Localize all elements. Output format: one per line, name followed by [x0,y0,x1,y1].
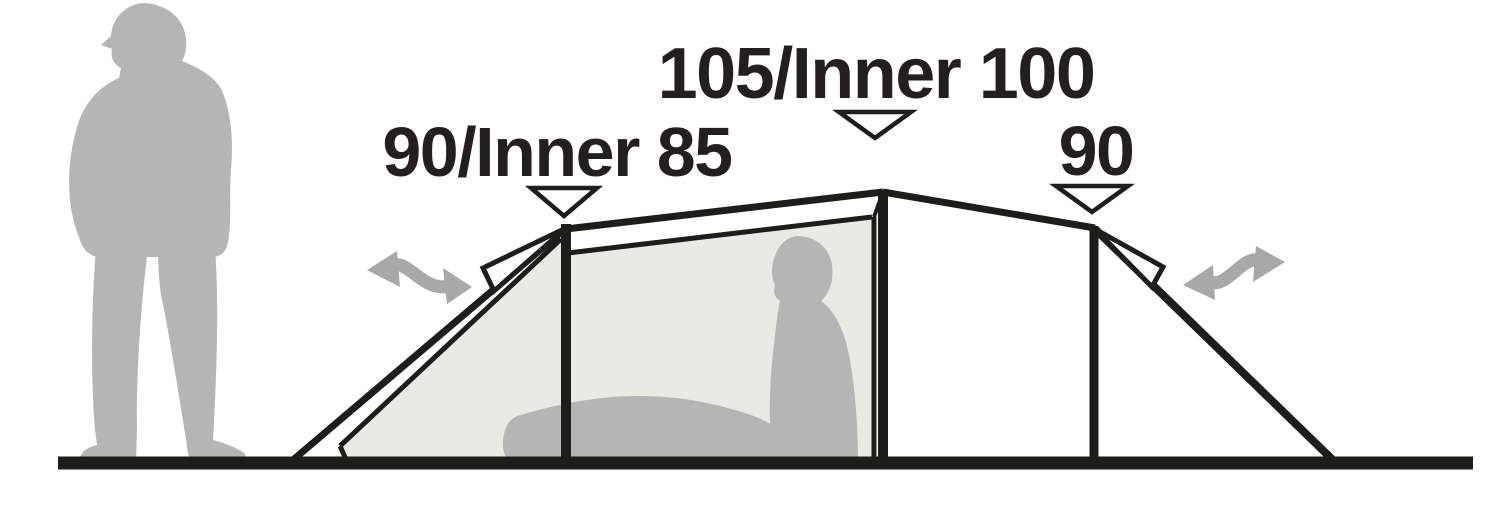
standing-person-silhouette [69,3,246,462]
right-arrow-head-left [1183,265,1215,300]
standing-person-body [69,3,232,257]
flysheet-ridge-right [883,192,1095,228]
left-arrow-head-left [367,251,400,287]
standing-person-left-leg [80,248,148,462]
left-arrow-head-right [443,268,472,304]
standing-person-right-leg [158,248,246,461]
right-arrow-head-right [1253,246,1285,282]
front-height-label: 90/Inner 85 [382,113,731,191]
center-height-label: 105/Inner 100 [658,34,1095,114]
tent-dimension-diagram: 90/Inner 85 105/Inner 100 90 [0,0,1500,531]
diagram-canvas: 90/Inner 85 105/Inner 100 90 [0,0,1500,531]
right-door-arrow-icon [1183,246,1285,300]
right-door-flap [1095,229,1163,287]
left-door-arrow-icon [367,251,472,304]
center-measure-triangle-icon [839,112,911,138]
rear-height-label: 90 [1059,112,1134,190]
left-measure-triangle-icon [531,188,597,216]
